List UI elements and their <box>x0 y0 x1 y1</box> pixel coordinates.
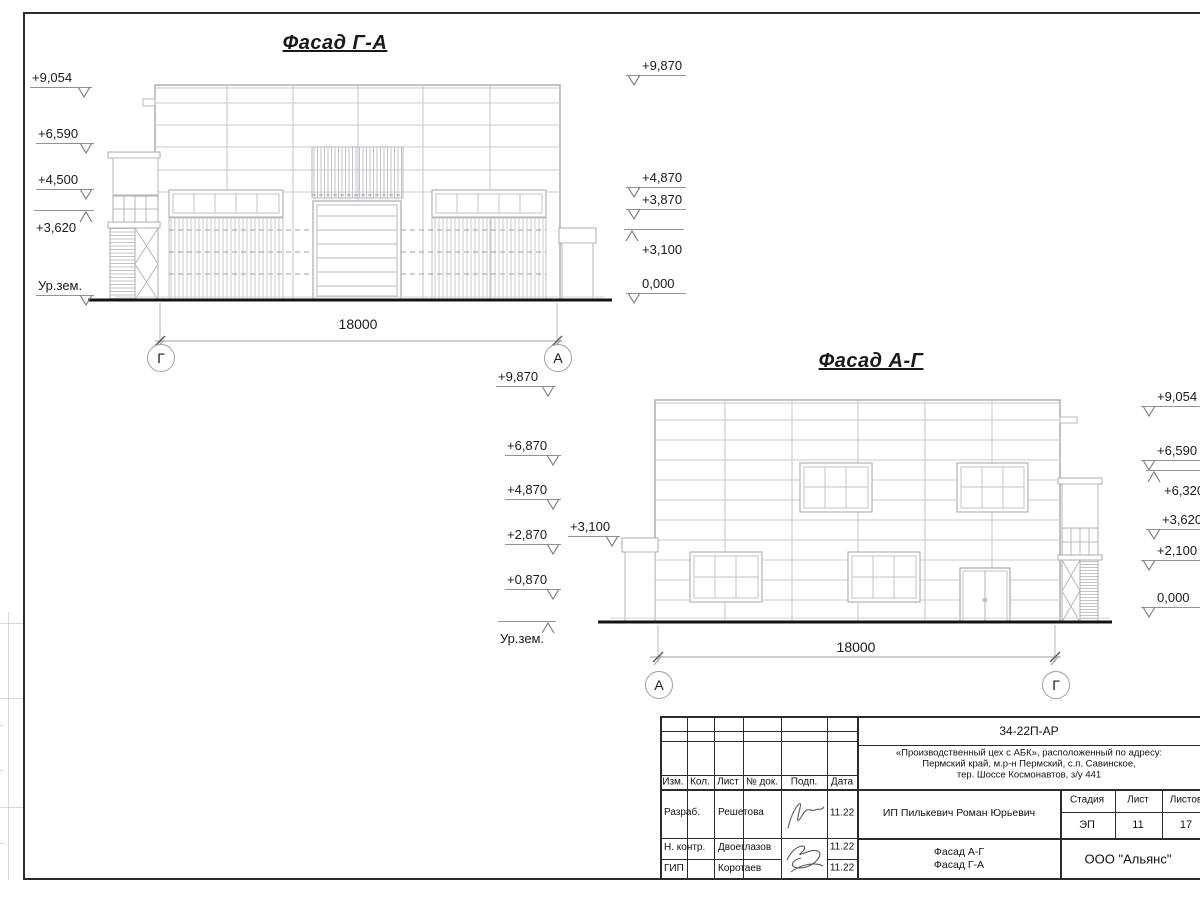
signature-icon <box>783 838 826 878</box>
row-date: 11.22 <box>830 808 854 819</box>
elevation-mark: +6,590 <box>1141 443 1200 461</box>
elevation-mark: +6,590 <box>36 126 94 144</box>
elevation-arrow-down-icon <box>1142 606 1156 618</box>
facade2-dimension: 18000 <box>816 639 896 655</box>
elevation-arrow-down-icon <box>1142 405 1156 417</box>
row-date: 11.22 <box>830 842 854 853</box>
elevation-arrow-up-icon <box>1147 471 1161 483</box>
axis-letter: А <box>654 677 663 693</box>
row-name: Коротаев <box>718 863 761 874</box>
elevation-arrow-down-icon <box>627 292 641 304</box>
elevation-mark: +3,100 <box>624 229 684 257</box>
elevation-arrow-down-icon <box>627 208 641 220</box>
stage-label: Стадия <box>1070 795 1104 806</box>
margin-line <box>8 612 9 880</box>
elevation-arrow-up-icon <box>541 622 555 634</box>
margin-tick <box>0 843 4 844</box>
elevation-mark: +3,620 <box>34 210 94 235</box>
elevation-arrow-down-icon <box>605 535 619 547</box>
elevation-arrow-down-icon <box>546 454 560 466</box>
elevation-mark: 0,000 <box>626 276 686 294</box>
margin-tick <box>0 770 4 771</box>
facade1-axis-left-bubble: Г <box>147 344 175 372</box>
sheet-title-line1: Фасад А-Г <box>934 846 984 858</box>
col-data: Дата <box>831 777 853 788</box>
facade1-dimension: 18000 <box>318 316 398 332</box>
row-role: ГИП <box>664 863 684 874</box>
facade2-axis-left-bubble: А <box>645 671 673 699</box>
row-name: Решетова <box>718 807 764 818</box>
margin-line <box>0 698 23 699</box>
elevation-arrow-down-icon <box>79 294 93 306</box>
elevation-mark: 0,000 <box>1141 590 1200 608</box>
col-podp: Подп. <box>791 777 818 788</box>
elevation-mark: +3,620 <box>1146 512 1200 530</box>
margin-line <box>0 623 23 624</box>
elevation-mark: +0,870 <box>505 572 561 590</box>
stage-value: ЭП <box>1079 819 1095 831</box>
elevation-mark: +9,054 <box>30 70 92 88</box>
facade1-title: Фасад Г-А <box>250 32 420 55</box>
project-line1: «Производственный цех с АБК», расположен… <box>896 748 1162 759</box>
elevation-mark: +2,870 <box>505 527 561 545</box>
elevation-mark: +2,100 <box>1141 543 1200 561</box>
elevation-arrow-up-icon <box>625 230 639 242</box>
elevation-mark: +3,100 <box>568 519 620 537</box>
facade2-axis-right-bubble: Г <box>1042 671 1070 699</box>
elevation-mark: Ур.зем. <box>36 278 94 296</box>
elevation-arrow-down-icon <box>546 588 560 600</box>
elevation-mark: +9,870 <box>496 369 556 387</box>
row-role: Н. контр. <box>664 842 705 853</box>
row-date: 11.22 <box>830 863 854 874</box>
elevation-arrow-down-icon <box>79 188 93 200</box>
elevation-mark: +9,054 <box>1141 389 1200 407</box>
sheet-number: 11 <box>1132 819 1143 831</box>
axis-letter: А <box>553 350 562 366</box>
sheets-total: 17 <box>1180 819 1192 831</box>
facade1-axis-right-bubble: А <box>544 344 572 372</box>
col-kol: Кол. <box>690 777 710 788</box>
elevation-arrow-down-icon <box>77 86 91 98</box>
drawing-sheet: Фасад Г-А <box>0 0 1200 900</box>
signature-icon <box>783 792 826 836</box>
col-doc: № док. <box>746 777 778 788</box>
elevation-mark: Ур.зем. <box>498 621 556 646</box>
elevation-arrow-down-icon <box>546 543 560 555</box>
col-izm: Изм. <box>662 777 683 788</box>
facade2-title: Фасад А-Г <box>786 350 956 373</box>
elevation-arrow-down-icon <box>541 385 555 397</box>
axis-letter: Г <box>1052 677 1060 693</box>
elevation-arrow-down-icon <box>546 498 560 510</box>
margin-line <box>0 807 23 808</box>
row-role: Разраб. <box>664 807 700 818</box>
sheet-label: Лист <box>1127 795 1149 806</box>
client-name: ИП Пилькевич Роман Юрьевич <box>883 807 1035 819</box>
title-block: Изм. Кол. Лист № док. Подп. Дата Разраб.… <box>660 716 1200 880</box>
sheets-label: Листов <box>1170 795 1200 806</box>
elevation-mark: +4,870 <box>505 482 561 500</box>
elevation-mark: +6,870 <box>505 438 561 456</box>
axis-letter: Г <box>157 350 165 366</box>
elevation-arrow-down-icon <box>79 142 93 154</box>
col-list: Лист <box>717 777 739 788</box>
sheet-title-line2: Фасад Г-А <box>934 859 984 871</box>
elevation-arrow-down-icon <box>627 74 641 86</box>
project-line2: Пермский край, м.р-н Пермский, с.п. Сави… <box>922 759 1136 770</box>
elevation-mark: +3,870 <box>626 192 686 210</box>
elevation-mark: +4,870 <box>626 170 686 188</box>
project-line3: тер. Шоссе Космонавтов, з/у 441 <box>957 770 1101 781</box>
company-name: ООО "Альянс" <box>1085 852 1172 867</box>
elevation-mark: +4,500 <box>36 172 94 190</box>
elevation-arrow-down-icon <box>1147 528 1161 540</box>
frame-left <box>23 12 25 880</box>
doc-number: 34-22П-АР <box>999 724 1058 738</box>
elevation-mark: +6,320 <box>1146 470 1200 498</box>
margin-tick <box>0 725 4 726</box>
frame-top <box>23 12 1200 14</box>
elevation-arrow-down-icon <box>1142 559 1156 571</box>
elevation-mark: +9,870 <box>626 58 686 76</box>
row-name: Двоеглазов <box>718 842 771 853</box>
elevation-arrow-up-icon <box>79 211 93 223</box>
